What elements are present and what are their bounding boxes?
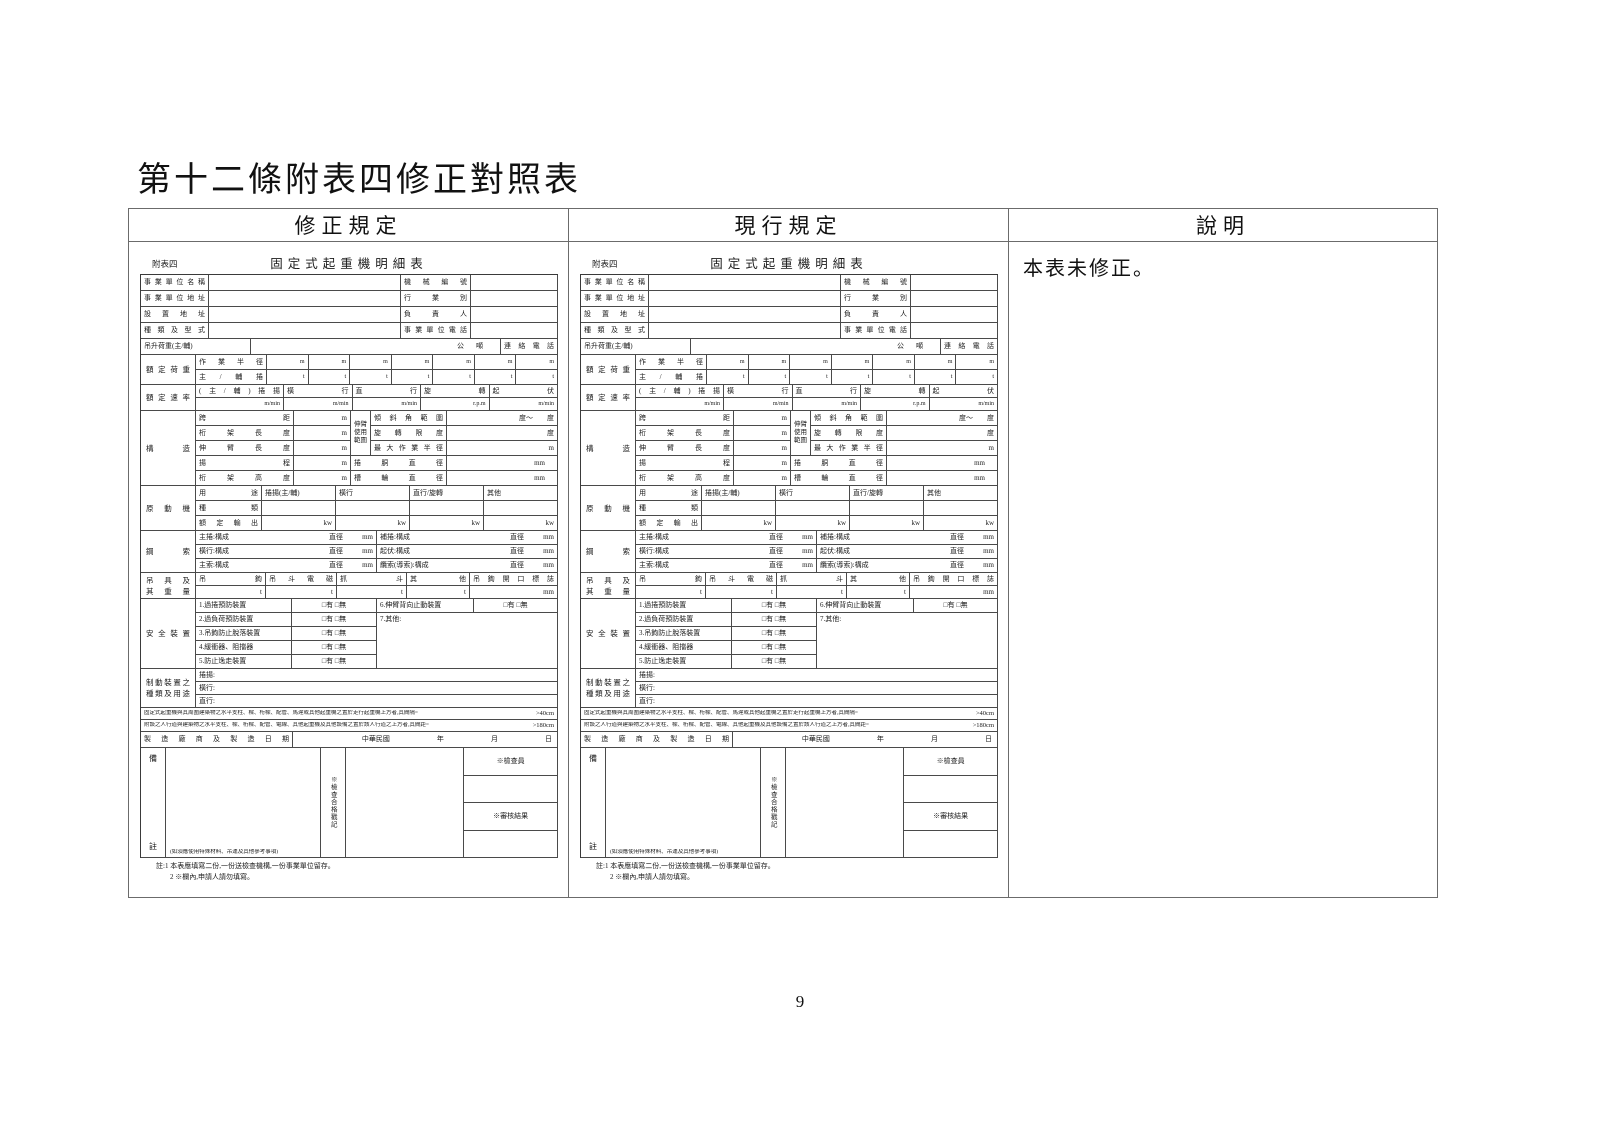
motor-usage-row: 用途捲揚(主/輔)橫行直行/旋轉其他	[196, 486, 558, 501]
label-text: 桁架長度	[639, 429, 730, 437]
dia-label: 直徑	[950, 547, 964, 555]
structure-row: 桁架高度m	[196, 471, 351, 486]
value-cell: 度～ 度	[887, 411, 998, 426]
rope-row: 主索:構成直徑mm纜索(導索):構成直徑mm	[636, 559, 998, 573]
date-unit-label: 月	[491, 735, 498, 743]
value-cell: m	[887, 441, 998, 456]
gear-section: 吊具及 其重量吊鉤吊斗電磁抓斗其他吊鉤開口標誌ttttmm	[581, 573, 998, 599]
label-text: 其他	[410, 575, 466, 583]
field-label: 桁架高度	[636, 471, 734, 486]
unit-cell: t	[196, 586, 266, 599]
gear-header-row: 吊鉤吊斗電磁抓斗其他吊鉤開口標誌	[196, 573, 558, 586]
field-label: 連絡電話	[501, 339, 558, 355]
unit-label: mm	[783, 547, 813, 555]
section-label: 額定速率	[581, 385, 636, 411]
label-text: 橫行	[287, 387, 349, 395]
inspector-value	[464, 776, 558, 803]
rated-speed-section: 額定速率(主/輔)捲揚橫行直行旋轉起伏m/minm/minm/minr.p.mm…	[141, 385, 558, 411]
label-text: 捲胴直徑	[794, 459, 883, 467]
remarks-content: (如須應使用特殊材料、吊運及其他參考事項)	[606, 748, 761, 858]
dia-label: 直徑	[950, 561, 964, 569]
remarks-content: (如須應使用特殊材料、吊運及其他參考事項)	[166, 748, 321, 858]
label-text: 跨距	[199, 414, 290, 422]
label-text: 揚程	[199, 459, 290, 467]
section-label: 原動機	[581, 486, 636, 531]
rated-speed-section: 額定速率(主/輔)捲揚橫行直行旋轉起伏m/minm/minm/minr.p.mm…	[581, 385, 998, 411]
safety-item-row: 5.防止逸走裝置□有 □無	[636, 655, 817, 669]
label-text: 安全裝置	[146, 628, 190, 639]
value-cell: t	[707, 370, 749, 385]
usage-cell: 捲揚(主/輔)	[702, 486, 776, 501]
field-value	[649, 291, 841, 307]
structure-right-column: 伸臂使用範圍傾斜角範圍度～ 度旋轉限度度最大作業半徑m捲胴直徑mm槽輪直徑mm	[351, 411, 558, 486]
structure-row: 桁架長度m	[636, 426, 791, 441]
safety-item-row: 2.過負荷預防裝置□有 □無	[196, 613, 377, 627]
date-unit-label: 月	[931, 735, 938, 743]
note-value: >40cm	[532, 710, 554, 717]
section-body: 主捲:構成直徑mm補捲:構成直徑mm橫行:構成直徑mm起伏:構成直徑mm主索:構…	[636, 531, 998, 573]
explanation-text: 本表未修正。	[1009, 242, 1437, 291]
value-cell: m	[294, 456, 351, 471]
clearance-note-row: 固定式起重機與其周圍建築物之水平支柱、樑、桁樑、配管、馬達或其他起重機之置於走行…	[141, 708, 558, 720]
rated-load-row: 作業半徑mmmmmmm	[636, 355, 998, 370]
label-text: 主/輔捲	[639, 373, 703, 381]
structure-right-column: 伸臂使用範圍傾斜角範圍度～ 度旋轉限度度最大作業半徑m捲胴直徑mm槽輪直徑mm	[791, 411, 998, 486]
field-label: 吊升荷重(主/輔)	[581, 339, 691, 355]
field-value	[209, 275, 401, 291]
label-text: 事業單位名稱	[144, 278, 205, 286]
column-header: 直行	[793, 385, 862, 398]
document-title: 第十二條附表四修正對照表	[137, 152, 581, 201]
review-column: ※檢查員※審核結果	[464, 748, 558, 858]
inspector-label: ※檢查員	[904, 748, 998, 776]
label-text: 跨距	[639, 414, 730, 422]
field-label: 捲揚:	[196, 669, 558, 682]
unit-label: mm	[343, 547, 373, 555]
review-column: ※檢查員※審核結果	[904, 748, 998, 858]
value-cell: m	[790, 355, 832, 370]
column-header: 其他	[407, 573, 470, 586]
value-cell: m	[832, 355, 874, 370]
label-text: 桁架高度	[199, 474, 290, 482]
manufacture-row: 製造廠商及製造日期中華民國年月日	[141, 732, 558, 748]
unit-label: mm	[964, 561, 994, 569]
value-cell: 度	[887, 426, 998, 441]
label-text: 主/輔捲	[199, 373, 263, 381]
label-text: 事業單位電話	[404, 326, 467, 334]
label-text: 行業別	[844, 294, 907, 302]
field-label: 行業別	[401, 291, 471, 307]
field-label: 主捲:構成	[639, 533, 669, 541]
rated-load-row: 主/輔捲ttttttt	[196, 370, 558, 385]
label-text: 直行	[796, 387, 858, 395]
label-text: 揚程	[639, 459, 730, 467]
section-label: 安全裝置	[581, 599, 636, 669]
column-header: 吊鉤	[196, 573, 266, 586]
unit-cell: t	[636, 586, 706, 599]
structure-row: 傾斜角範圍度～ 度	[811, 411, 998, 426]
label-text: 構造	[146, 443, 190, 454]
field-label: 槽輪直徑	[351, 471, 447, 486]
brake-row: 橫行:	[636, 682, 998, 695]
inspector-label: ※檢查員	[464, 748, 558, 776]
field-label: 用途	[196, 486, 262, 501]
label-text: 連絡電話	[944, 342, 994, 350]
yes-no-checkboxes: □有 □無	[732, 641, 817, 655]
value-cell: t	[309, 370, 351, 385]
rope-section: 鋼索主捲:構成直徑mm補捲:構成直徑mm橫行:構成直徑mm起伏:構成直徑mm主索…	[141, 531, 558, 573]
label-text: 吊鉤開口標誌	[473, 575, 554, 583]
field-value	[471, 275, 558, 291]
rated-speed-unit-row: m/minm/minm/minr.p.mm/min	[636, 398, 998, 411]
structure-row: 最大作業半徑m	[371, 441, 558, 456]
review-result-label: ※審核結果	[904, 803, 998, 831]
field-label: 製造廠商及製造日期	[141, 732, 293, 748]
field-label: 最大作業半徑	[811, 441, 887, 456]
manufacture-date-cell: 中華民國年月日	[733, 732, 998, 748]
structure-section: 構造跨距m桁架長度m伸臂長度m揚程m桁架高度m伸臂使用範圍傾斜角範圍度～ 度旋轉…	[581, 411, 998, 486]
label-text: 起伏	[933, 387, 995, 395]
value-cell: m	[734, 411, 791, 426]
motor-type-row: 種類	[196, 501, 558, 516]
date-unit-label: 日	[985, 735, 992, 743]
dia-label: 直徑	[510, 533, 524, 541]
safety-right-column: 6.伸臂背向止動裝置□有 □無7.其他:	[377, 599, 558, 669]
field-value	[410, 501, 484, 516]
unit-cell: m/min	[930, 398, 999, 411]
value-cell: 度～ 度	[447, 411, 558, 426]
inspector-value	[904, 776, 998, 803]
field-label: 事業單位地址	[581, 291, 649, 307]
section-label: 額定速率	[141, 385, 196, 411]
value-cell: m	[707, 355, 749, 370]
rope-row: 主索:構成直徑mm纜索(導索):構成直徑mm	[196, 559, 558, 573]
value-cell: m	[956, 355, 998, 370]
unit-cell: t	[777, 586, 847, 599]
label-text: 作業半徑	[199, 358, 263, 366]
motor-output-row: 額定輸出kwkwkwkw	[196, 516, 558, 531]
yes-no-checkboxes: □有 □無	[292, 655, 377, 669]
rope-section: 鋼索主捲:構成直徑mm補捲:構成直徑mm橫行:構成直徑mm起伏:構成直徑mm主索…	[581, 531, 998, 573]
unit-cell: kw	[776, 516, 850, 531]
structure-row: 跨距m	[636, 411, 791, 426]
value-cell: m	[309, 355, 351, 370]
field-label: 種類及型式	[581, 323, 649, 339]
brake-row: 捲揚:	[196, 669, 558, 682]
structure-row: 旋轉限度度	[811, 426, 998, 441]
rope-cell: 主索:構成直徑mm	[196, 559, 377, 573]
field-label: 主索:構成	[639, 561, 669, 569]
form-header: 附表四固定式起重機明細表	[140, 250, 558, 272]
motor-type-row: 種類	[636, 501, 998, 516]
clearance-note: 固定式起重機與其周圍建築物之水平支柱、樑、桁樑、配管、馬達或其他起重機之置於走行…	[141, 708, 558, 720]
yes-no-checkboxes: □有 □無	[732, 613, 817, 627]
safety-item-label: 6.伸臂背向止動裝置	[377, 599, 474, 613]
section-label: 鋼索	[581, 531, 636, 573]
motor-section: 原動機用途捲揚(主/輔)橫行直行/旋轉其他種類額定輸出kwkwkwkw	[141, 486, 558, 531]
field-label: 作業半徑	[636, 355, 707, 370]
section-body: 主捲:構成直徑mm補捲:構成直徑mm橫行:構成直徑mm起伏:構成直徑mm主索:構…	[196, 531, 558, 573]
field-label: 伸臂長度	[196, 441, 294, 456]
label-text: 直行	[356, 387, 418, 395]
label-text: 旋轉	[864, 387, 926, 395]
label-text: 其他	[850, 575, 906, 583]
structure-row: 旋轉限度度	[371, 426, 558, 441]
field-value	[262, 501, 336, 516]
column-header: 橫行	[284, 385, 353, 398]
unit-cell: m/min	[793, 398, 862, 411]
value-cell: mm	[887, 456, 998, 471]
unit-cell: kw	[850, 516, 924, 531]
label-text: 鋼索	[146, 546, 190, 557]
section-body: 吊鉤吊斗電磁抓斗其他吊鉤開口標誌ttttmm	[196, 573, 558, 599]
section-body: 1.過捲預防裝置□有 □無2.過負荷預防裝置□有 □無3.吊鉤防止脫落裝置□有 …	[636, 599, 998, 669]
structure-row: 揚程m	[636, 456, 791, 471]
safety-item-label: 2.過負荷預防裝置	[196, 613, 292, 627]
label-text: 事業單位地址	[584, 294, 645, 302]
rope-cell: 纜索(導索):構成直徑mm	[377, 559, 558, 573]
label-text: 吊具及 其重量	[586, 575, 630, 597]
column-header: 起伏	[490, 385, 559, 398]
field-label: 最大作業半徑	[371, 441, 447, 456]
info-row: 事業單位地址行業別	[581, 291, 998, 307]
unit-cell: kw	[410, 516, 484, 531]
safety-item-label: 1.過捲預防裝置	[196, 599, 292, 613]
remarks-note: (如須應使用特殊材料、吊運及其他參考事項)	[170, 849, 318, 855]
label-text: 註	[589, 842, 597, 851]
rope-cell: 橫行:構成直徑mm	[196, 545, 377, 559]
column-header: (主/輔)捲揚	[196, 385, 284, 398]
current-column: 附表四固定式起重機明細表事業單位名稱機械編號事業單位地址行業別設置地址負責人種類…	[569, 242, 1009, 897]
label-text: 伸臂長度	[639, 444, 730, 452]
usage-cell: 其他	[924, 486, 998, 501]
unit-cell: r.p.m	[861, 398, 930, 411]
field-value	[850, 501, 924, 516]
field-value	[911, 291, 998, 307]
label-text: 桁架高度	[639, 474, 730, 482]
rope-cell: 起伏:構成直徑mm	[377, 545, 558, 559]
unit-cell: m/min	[636, 398, 724, 411]
structure-row: 桁架長度m	[196, 426, 351, 441]
inspection-stamp-cell: ※檢查合格戳記	[761, 748, 786, 858]
note-text: 固定式起重機與其周圍建築物之水平支柱、樑、桁樑、配管、馬達或其他起重機之置於走行…	[144, 710, 532, 716]
label-text: 傾斜角範圍	[814, 414, 883, 422]
structure-row: 桁架高度m	[636, 471, 791, 486]
form-table: 事業單位名稱機械編號事業單位地址行業別設置地址負責人種類及型式事業單位電話吊升荷…	[140, 274, 558, 858]
info-row: 事業單位名稱機械編號	[141, 275, 558, 291]
label-text: 用途	[199, 489, 258, 497]
rated-load-section: 額定荷重作業半徑mmmmmmm主/輔捲ttttttt	[141, 355, 558, 385]
amended-form: 附表四固定式起重機明細表事業單位名稱機械編號事業單位地址行業別設置地址負責人種類…	[129, 250, 568, 883]
manufacture-row: 製造廠商及製造日期中華民國年月日	[581, 732, 998, 748]
field-label: 起伏:構成	[820, 547, 850, 555]
structure-row: 捲胴直徑mm	[791, 456, 998, 471]
column-header: 吊斗電磁	[706, 573, 777, 586]
label-text: 槽輪直徑	[354, 474, 443, 482]
field-label: 揚程	[636, 456, 734, 471]
crane-detail-form: 附表四固定式起重機明細表事業單位名稱機械編號事業單位地址行業別設置地址負責人種類…	[140, 250, 558, 883]
label-text: 負責人	[844, 310, 907, 318]
field-label: 補捲:構成	[380, 533, 410, 541]
dia-label: 直徑	[329, 561, 343, 569]
rated-load-section: 額定荷重作業半徑mmmmmmm主/輔捲ttttttt	[581, 355, 998, 385]
field-label: 製造廠商及製造日期	[581, 732, 733, 748]
field-value	[911, 307, 998, 323]
field-value	[649, 323, 841, 339]
yes-no-checkboxes: □有 □無	[914, 599, 998, 613]
label-text: 原動機	[586, 503, 630, 514]
field-label: 機械編號	[841, 275, 911, 291]
boom-range-label: 伸臂使用範圍	[351, 411, 371, 456]
value-cell: m	[294, 411, 351, 426]
safety-item-label: 2.過負荷預防裝置	[636, 613, 732, 627]
remarks-block: 備註(如須應使用特殊材料、吊運及其他參考事項)※檢查合格戳記※檢查員※審核結果	[141, 748, 558, 858]
field-label: 行業別	[841, 291, 911, 307]
field-label: 旋轉限度	[811, 426, 887, 441]
rope-row: 主捲:構成直徑mm補捲:構成直徑mm	[636, 531, 998, 545]
field-value	[924, 501, 998, 516]
info-row: 事業單位名稱機械編號	[581, 275, 998, 291]
value-cell: m	[915, 355, 957, 370]
gear-header-row: 吊鉤吊斗電磁抓斗其他吊鉤開口標誌	[636, 573, 998, 586]
field-label: 用途	[636, 486, 702, 501]
column-header-current: 現行規定	[569, 209, 1009, 241]
column-header-amended: 修正規定	[129, 209, 569, 241]
field-label: 負責人	[841, 307, 911, 323]
label-text: 製造廠商及製造日期	[144, 735, 289, 743]
value-cell: mm	[447, 471, 558, 486]
remarks-note: (如須應使用特殊材料、吊運及其他參考事項)	[610, 849, 758, 855]
label-text: 制動裝置之 種類及用途	[146, 677, 190, 699]
unit-cell: m/min	[196, 398, 284, 411]
inspection-stamp-cell: ※檢查合格戳記	[321, 748, 346, 858]
safety-item-row: 4.緩衝器、阻擋器□有 □無	[636, 641, 817, 655]
date-unit-label: 日	[545, 735, 552, 743]
value-cell: t	[832, 370, 874, 385]
usage-cell: 直行/旋轉	[410, 486, 484, 501]
safety-item-row: 6.伸臂背向止動裝置□有 □無	[377, 599, 558, 613]
unit-cell: kw	[262, 516, 336, 531]
section-body: 跨距m桁架長度m伸臂長度m揚程m桁架高度m伸臂使用範圍傾斜角範圍度～ 度旋轉限度…	[636, 411, 998, 486]
yes-no-checkboxes: □有 □無	[292, 641, 377, 655]
form-footnote: 2 ※欄內,申請人請勿填寫。	[140, 872, 558, 883]
field-value	[911, 323, 998, 339]
unit-cell: t	[706, 586, 777, 599]
field-value	[209, 291, 401, 307]
value-cell: mm	[447, 456, 558, 471]
field-label: 額定輸出	[636, 516, 702, 531]
field-value	[649, 275, 841, 291]
rope-row: 橫行:構成直徑mm起伏:構成直徑mm	[196, 545, 558, 559]
rope-row: 主捲:構成直徑mm補捲:構成直徑mm	[196, 531, 558, 545]
remarks-label: 備註	[141, 748, 166, 858]
section-label: 額定荷重	[141, 355, 196, 385]
label-text: 構造	[586, 443, 630, 454]
dia-label: 直徑	[950, 533, 964, 541]
field-label: 種類及型式	[141, 323, 209, 339]
page-number: 9	[0, 992, 1600, 1012]
unit-label: 公噸	[457, 342, 497, 350]
column-header: 吊斗電磁	[266, 573, 337, 586]
safety-item-row: 1.過捲預防裝置□有 □無	[636, 599, 817, 613]
yes-no-checkboxes: □有 □無	[732, 599, 817, 613]
structure-row: 伸臂長度m	[196, 441, 351, 456]
field-label: 負責人	[401, 307, 471, 323]
label-text: 吊斗電磁	[269, 575, 333, 583]
label-text: 作業半徑	[639, 358, 703, 366]
dia-label: 直徑	[769, 533, 783, 541]
brake-section: 制動裝置之 種類及用途捲揚:橫行:直行:	[581, 669, 998, 708]
label-text: 備	[149, 754, 157, 763]
value-cell: 度	[447, 426, 558, 441]
unit-cell: m/min	[724, 398, 793, 411]
field-label: 連絡電話	[941, 339, 998, 355]
note-text: 附設之人行道與建築物之水平支柱、樑、桁樑、配管、電線、其他起重機及其他設備之置於…	[144, 722, 529, 728]
field-label: 橫行:構成	[639, 547, 669, 555]
form-footnote: 2 ※欄內,申請人請勿填寫。	[580, 872, 998, 883]
usage-cell: 直行/旋轉	[850, 486, 924, 501]
manufacture-date-cell: 中華民國年月日	[293, 732, 558, 748]
label-text: 原動機	[146, 503, 190, 514]
field-label: 事業單位名稱	[581, 275, 649, 291]
value-cell: t	[516, 370, 558, 385]
explanation-column: 本表未修正。	[1009, 242, 1437, 897]
column-header: 吊鉤開口標誌	[910, 573, 998, 586]
field-value	[484, 501, 558, 516]
label-text: 註	[149, 842, 157, 851]
field-label: 設置地址	[581, 307, 649, 323]
label-text: 機械編號	[844, 278, 907, 286]
value-cell: t	[873, 370, 915, 385]
structure-row: 捲胴直徑mm	[351, 456, 558, 471]
structure-row: 槽輪直徑mm	[791, 471, 998, 486]
column-header: 直行	[353, 385, 422, 398]
brake-row: 直行:	[636, 695, 998, 708]
field-value	[209, 307, 401, 323]
stamp-label: ※檢查合格戳記	[769, 776, 776, 829]
value-cell: m	[294, 441, 351, 456]
motor-output-row: 額定輸出kwkwkwkw	[636, 516, 998, 531]
value-cell: t	[392, 370, 434, 385]
safety-item-row: 3.吊鉤防止脫落裝置□有 □無	[636, 627, 817, 641]
review-result-label: ※審核結果	[464, 803, 558, 831]
label-text: 槽輪直徑	[794, 474, 883, 482]
rope-cell: 橫行:構成直徑mm	[636, 545, 817, 559]
section-label: 構造	[581, 411, 636, 486]
boom-range-block: 伸臂使用範圍傾斜角範圍度～ 度旋轉限度度最大作業半徑m	[791, 411, 998, 456]
column-header: 吊鉤開口標誌	[470, 573, 558, 586]
field-label: 傾斜角範圍	[371, 411, 447, 426]
section-body: 作業半徑mmmmmmm主/輔捲ttttttt	[636, 355, 998, 385]
label-text: 種類及型式	[144, 326, 205, 334]
label-text: 最大作業半徑	[374, 444, 443, 452]
note-text: 固定式起重機與其周圍建築物之水平支柱、樑、桁樑、配管、馬達或其他起重機之置於走行…	[584, 710, 972, 716]
clearance-note-row: 固定式起重機與其周圍建築物之水平支柱、樑、桁樑、配管、馬達或其他起重機之置於走行…	[581, 708, 998, 720]
brake-row: 直行:	[196, 695, 558, 708]
section-body: 1.過捲預防裝置□有 □無2.過負荷預防裝置□有 □無3.吊鉤防止脫落裝置□有 …	[196, 599, 558, 669]
label-text: 負責人	[404, 310, 467, 318]
label-text: 額定輸出	[199, 519, 258, 527]
unit-cell: kw	[924, 516, 998, 531]
current-form: 附表四固定式起重機明細表事業單位名稱機械編號事業單位地址行業別設置地址負責人種類…	[569, 250, 1008, 883]
usage-cell: 捲揚(主/輔)	[262, 486, 336, 501]
section-label: 制動裝置之 種類及用途	[141, 669, 196, 708]
field-label: 旋轉限度	[371, 426, 447, 441]
section-body: 用途捲揚(主/輔)橫行直行/旋轉其他種類額定輸出kwkwkwkw	[196, 486, 558, 531]
brake-section: 制動裝置之 種類及用途捲揚:橫行:直行:	[141, 669, 558, 708]
label-text: 鋼索	[586, 546, 630, 557]
clearance-note: 附設之人行道與建築物之水平支柱、樑、桁樑、配管、電線、其他起重機及其他設備之置於…	[581, 720, 998, 732]
